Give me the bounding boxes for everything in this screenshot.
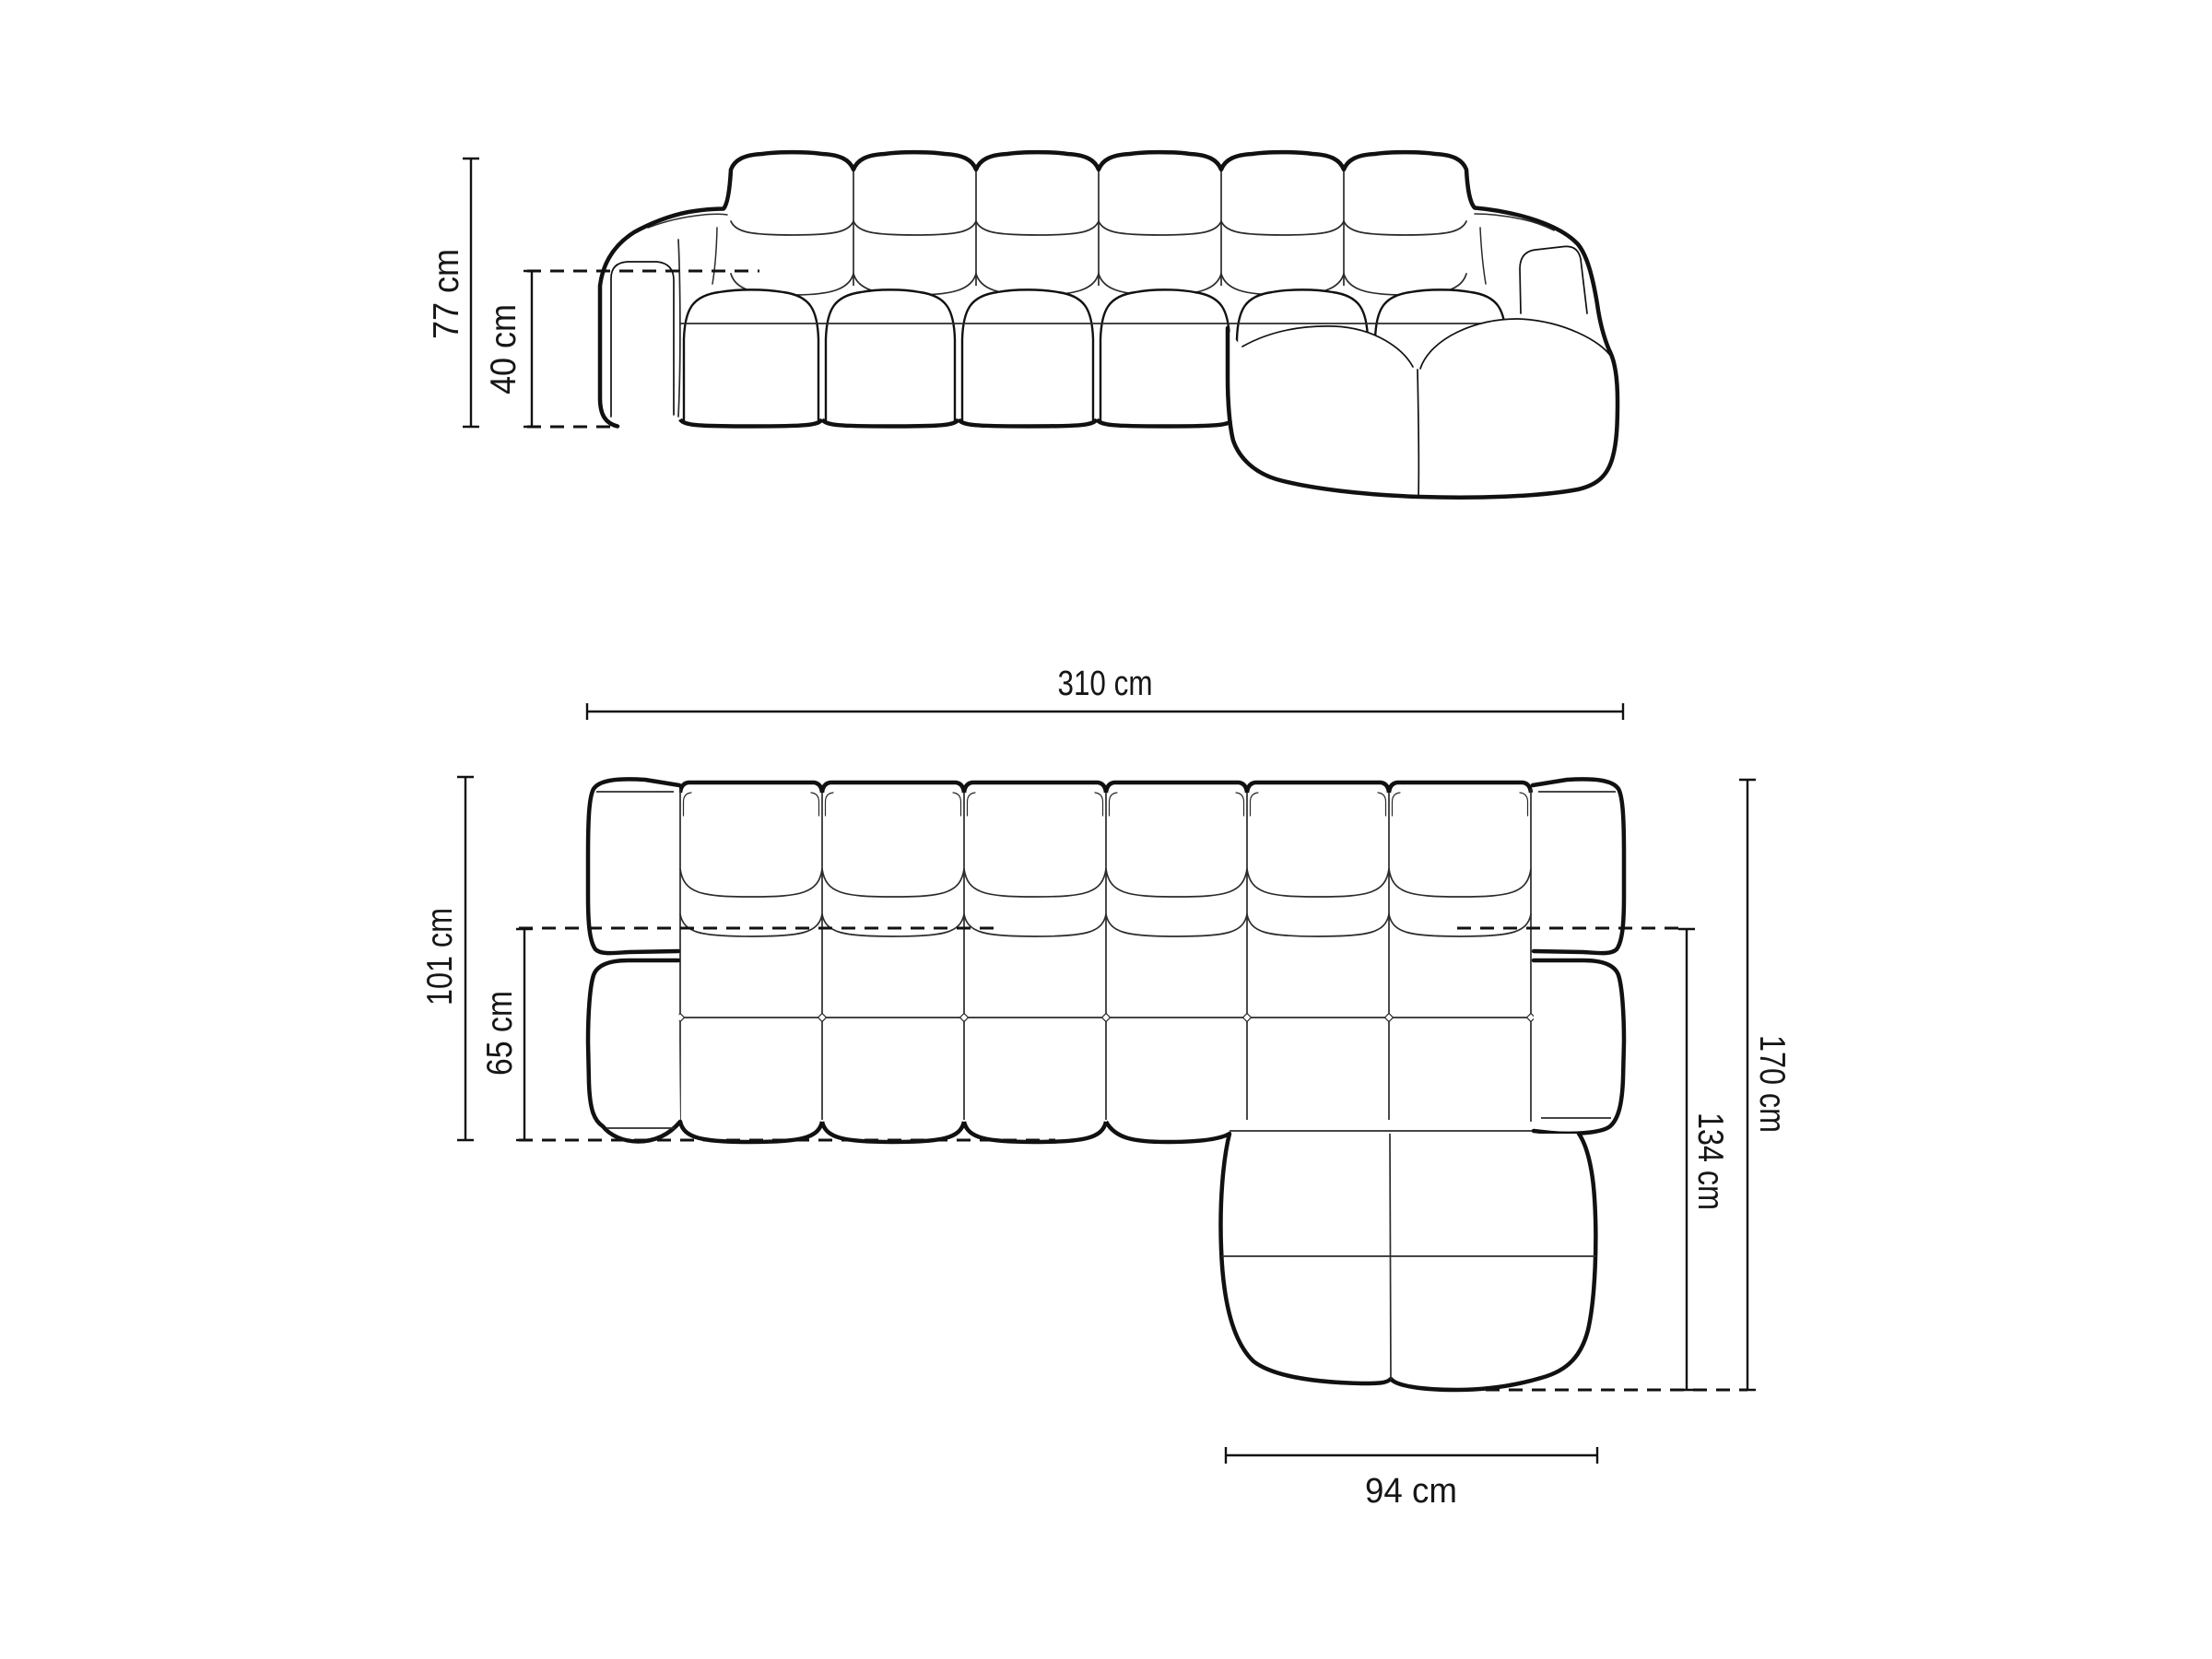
svg-text:77 cm: 77 cm (427, 249, 466, 339)
svg-text:94 cm: 94 cm (1365, 1472, 1457, 1511)
svg-text:40 cm: 40 cm (484, 304, 524, 394)
svg-text:170 cm: 170 cm (1752, 1035, 1792, 1133)
svg-text:65 cm: 65 cm (480, 991, 520, 1076)
svg-text:310 cm: 310 cm (1058, 665, 1153, 703)
svg-text:101 cm: 101 cm (420, 908, 460, 1006)
svg-text:134 cm: 134 cm (1690, 1112, 1730, 1210)
